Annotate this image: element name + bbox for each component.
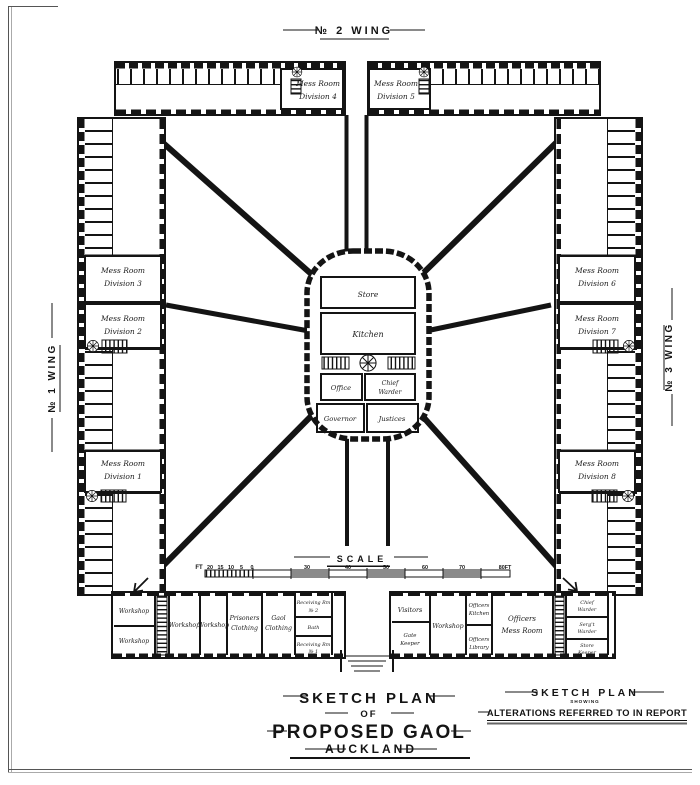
- scale-tick: 30: [304, 565, 310, 571]
- scale-tick: 70: [459, 565, 465, 571]
- workshop-label: Workshop: [432, 623, 463, 630]
- justices-label: Justices: [377, 415, 406, 423]
- scale-tick: 20: [207, 565, 213, 571]
- mess6-label-2: Division 6: [577, 279, 616, 288]
- corridor-e: [426, 305, 551, 331]
- stair-run: [592, 490, 617, 502]
- prisoners-clothing-label-2: Clothing: [231, 625, 258, 632]
- office-label: Office: [331, 384, 351, 392]
- chief-warder-label-1: Chief: [382, 380, 400, 387]
- mess8-label-2: Division 8: [577, 472, 616, 481]
- alterations-title-block: SKETCH PLAN SHOWING ALTERATIONS REFERRED…: [478, 687, 687, 724]
- mess-room-division4: [281, 69, 343, 109]
- receiving2-label-1: Receiving Rm: [296, 600, 331, 606]
- gaol-clothing-label-1: Gaol: [271, 615, 285, 622]
- alt-title-line2: SHOWING: [570, 699, 599, 704]
- wing3-cells: [608, 119, 635, 594]
- stair-fan-icon: [360, 355, 376, 371]
- mess1-label-2: Division 1: [103, 472, 142, 481]
- officers-mess-label-1: Officers: [508, 615, 536, 623]
- store-keeper-label-2: Keeper: [577, 650, 597, 656]
- gate-keeper-label-1: Gate: [404, 633, 417, 639]
- prisoners-clothing-label-1: Prisoners: [229, 615, 260, 622]
- chief-warder2-label-1: Chief: [580, 600, 595, 606]
- alt-title-line3: ALTERATIONS REFERRED TO IN REPORT: [487, 708, 687, 718]
- workshop-label: Workshop: [119, 608, 149, 615]
- store-label: Store: [358, 290, 379, 299]
- sergt-warder-label-1: Serg't: [579, 622, 595, 628]
- stair-run: [322, 357, 349, 369]
- wing2-label: № 2 WING: [315, 25, 393, 37]
- mess1-label-1: Mess Room: [100, 459, 145, 468]
- wing3-label-group: № 3 WING: [664, 288, 675, 426]
- stair-run: [101, 490, 126, 502]
- stair-run: [388, 357, 415, 369]
- wing2-left-block: Mess Room Division 4: [115, 62, 345, 115]
- gate-keeper-label-2: Keeper: [399, 641, 420, 647]
- wing1-label: № 1 WING: [47, 343, 58, 412]
- stair-fan-icon: [419, 67, 429, 77]
- mess8-label-1: Mess Room: [574, 459, 619, 468]
- bath-label: Bath: [307, 625, 320, 631]
- mess3-label-1: Mess Room: [100, 266, 145, 275]
- stair-fan-icon: [86, 490, 97, 501]
- stair-run: [419, 79, 429, 94]
- scale-unit: FT: [195, 565, 203, 571]
- receiving2-label-2: № 2: [308, 608, 319, 614]
- stair-run: [555, 596, 564, 655]
- corridor-nw: [153, 134, 326, 287]
- wing2-right-block: Mess Room Division 5: [368, 62, 600, 115]
- wing1-label-group: № 1 WING: [47, 303, 60, 452]
- central-outline: [307, 251, 429, 439]
- mess7-label-2: Division 7: [577, 327, 616, 336]
- entrance-steps: [341, 650, 393, 672]
- stair-fan-icon: [87, 340, 98, 351]
- stair-fan-icon: [292, 67, 302, 77]
- main-title-line3: PROPOSED GAOL: [272, 722, 466, 743]
- scale-tick: 40: [345, 565, 351, 571]
- alt-title-line1: SKETCH PLAN: [531, 687, 639, 699]
- store-keeper-label-1: Store: [580, 643, 594, 649]
- scale-tick: 5: [240, 565, 243, 571]
- mess6-label-1: Mess Room: [574, 266, 619, 275]
- officers-library-label-1: Officers: [469, 637, 490, 643]
- main-title-line2: OF: [360, 709, 377, 720]
- gaol-plan-drawing: № 2 WING Mess Room Division 4 Mess Room …: [0, 0, 700, 785]
- kitchen-label: Kitchen: [351, 330, 383, 339]
- receiving1-label-2: № 1: [308, 649, 319, 655]
- scale-group: SCALE FT 20 15 10 5 0 30 40 50 60 70 80F…: [195, 554, 512, 579]
- mess5-label-1: Mess Room: [373, 79, 418, 88]
- mess5-label-2: Division 5: [376, 92, 415, 101]
- scale-tick: 60: [422, 565, 428, 571]
- officers-kitchen-label-2: Kitchen: [468, 611, 489, 617]
- corridor-w: [166, 305, 309, 331]
- receiving1-label-1: Receiving Rm: [296, 642, 331, 648]
- workshop-label: Workshop: [119, 638, 149, 645]
- officers-kitchen-label-1: Officers: [469, 603, 490, 609]
- governor-label: Governor: [324, 415, 357, 423]
- officers-mess-label-2: Mess Room: [500, 627, 542, 635]
- wing1-cells: [85, 119, 112, 594]
- scale-tick: 10: [228, 565, 234, 571]
- wing3-label: № 3 WING: [664, 322, 675, 391]
- scale-title: SCALE: [337, 554, 388, 564]
- gaol-clothing-label-2: Clothing: [265, 625, 292, 632]
- mess2-label-2: Division 2: [103, 327, 142, 336]
- workshop-label: Workshop: [169, 622, 200, 629]
- stair-run: [157, 596, 167, 655]
- scale-tick: 15: [218, 565, 224, 571]
- main-title-block: SKETCH PLAN OF PROPOSED GAOL AUCKLAND: [267, 690, 471, 758]
- mess3-label-2: Division 3: [103, 279, 142, 288]
- officers-library-label-2: Library: [468, 645, 488, 651]
- stair-run: [102, 340, 127, 353]
- scale-tick-end: 80FT: [499, 565, 512, 571]
- scale-tick: 50: [383, 565, 389, 571]
- mess4-label-2: Division 4: [298, 92, 337, 101]
- main-title-line1: SKETCH PLAN: [299, 690, 439, 707]
- corridor-sw: [153, 401, 326, 576]
- stair-fan-icon: [622, 490, 633, 501]
- chief-warder-label-2: Warder: [378, 389, 402, 396]
- stair-run: [593, 340, 618, 353]
- mess4-label-1: Mess Room: [295, 79, 340, 88]
- visitors-label: Visitors: [398, 606, 423, 614]
- corridor-ne: [409, 134, 565, 287]
- drawing-sheet: № 2 WING Mess Room Division 4 Mess Room …: [0, 0, 700, 785]
- main-title-line4: AUCKLAND: [325, 742, 417, 756]
- wing3-block: Mess Room Division 6 Mess Room Division …: [555, 118, 642, 595]
- workshop-label: Workshop: [198, 622, 229, 629]
- wing2-label-group: № 2 WING: [283, 25, 425, 39]
- chief-warder2-label-2: Warder: [578, 607, 597, 613]
- mess7-label-1: Mess Room: [574, 314, 619, 323]
- sergt-warder-label-2: Warder: [578, 629, 597, 635]
- mess2-label-1: Mess Room: [100, 314, 145, 323]
- scale-tick: 0: [251, 565, 254, 571]
- stair-fan-icon: [623, 340, 634, 351]
- central-block: Store Kitchen Office Chief Warder Govern…: [307, 251, 429, 439]
- wing1-block: Mess Room Division 3 Mess Room Division …: [78, 118, 165, 595]
- corridor-se: [409, 401, 565, 576]
